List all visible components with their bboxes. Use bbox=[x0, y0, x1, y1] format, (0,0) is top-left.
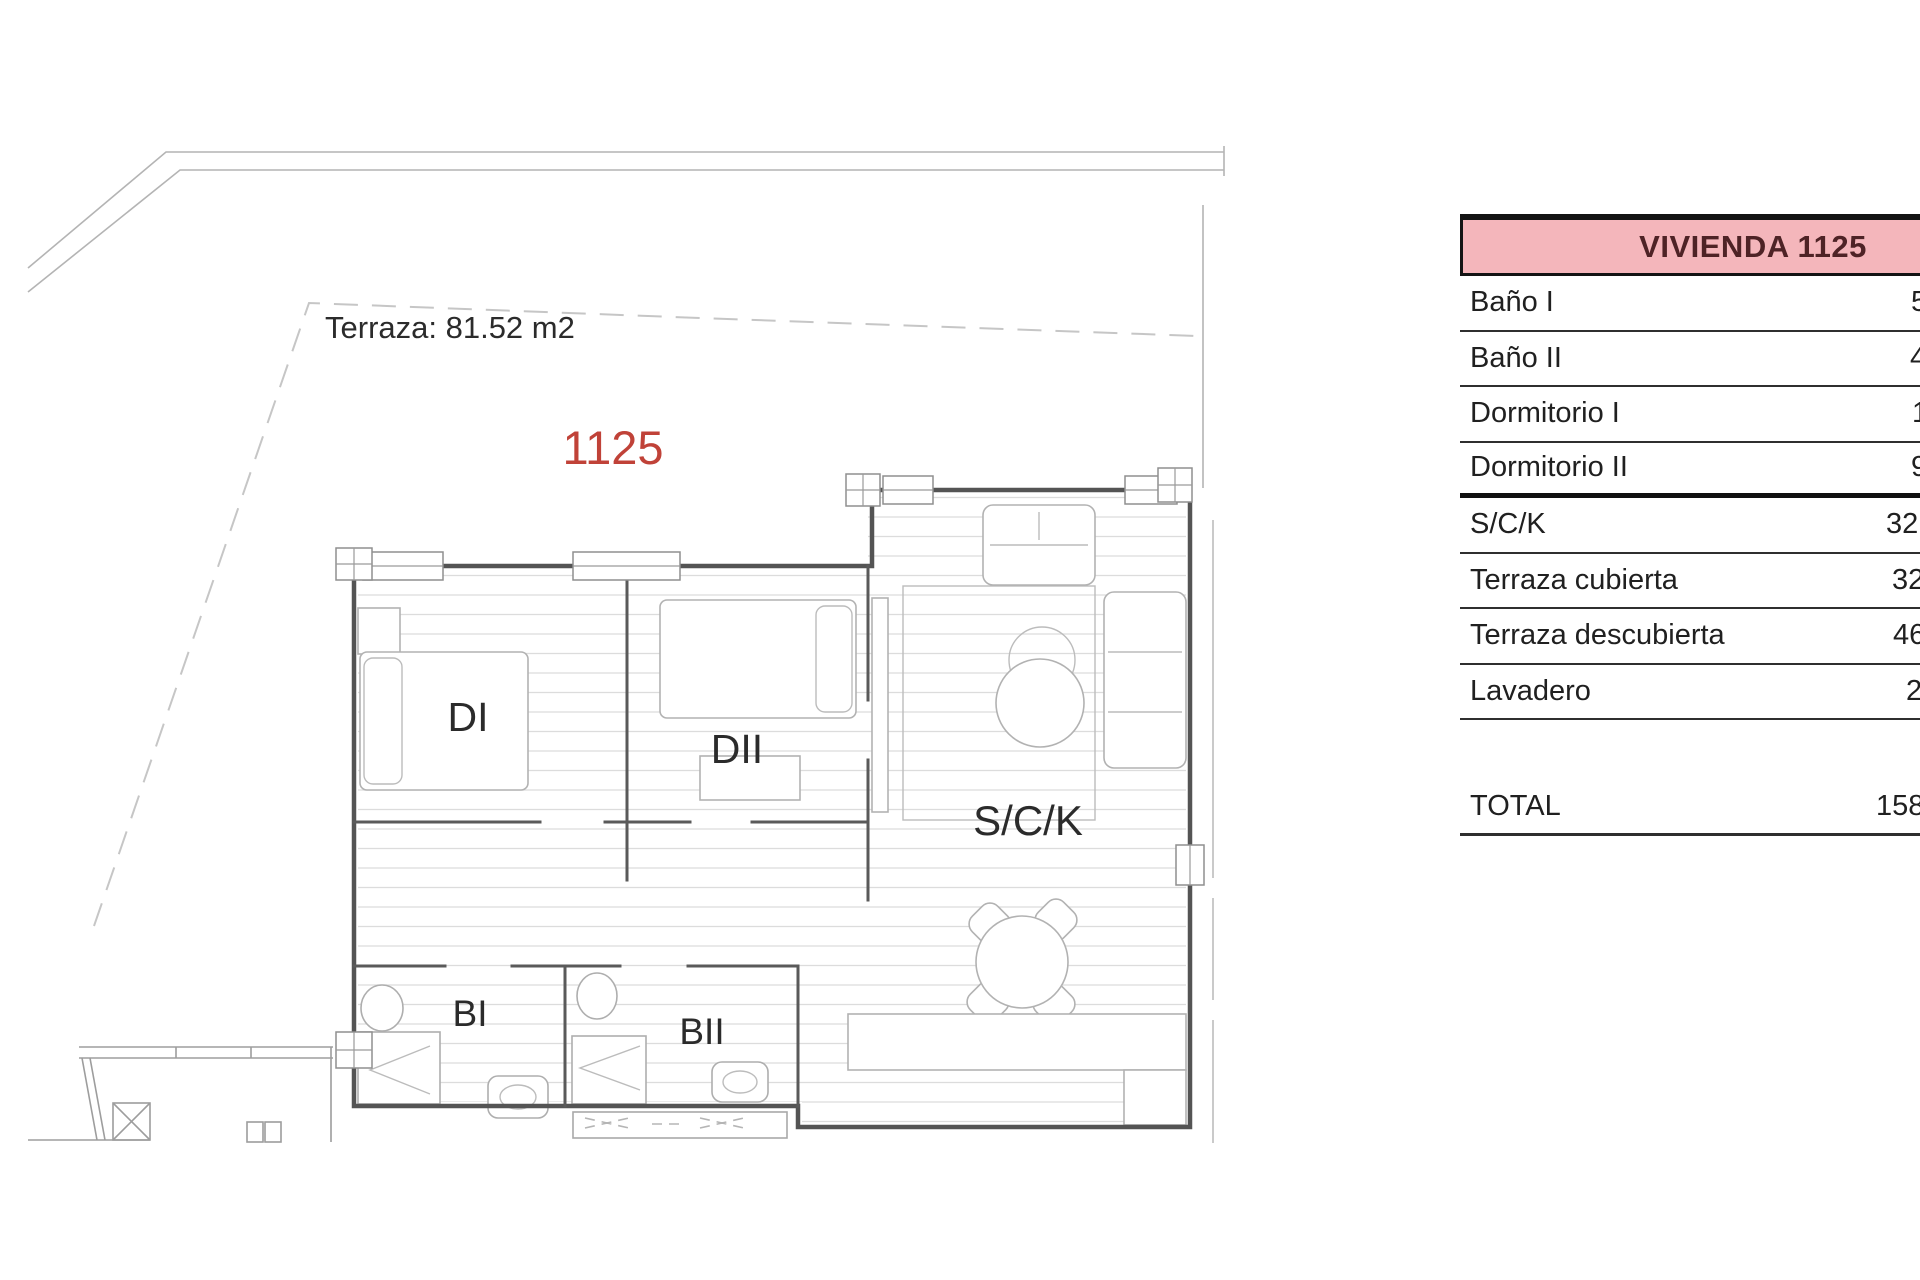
table-row: Dormitorio I 1 bbox=[1460, 387, 1920, 443]
toilet-bii-icon bbox=[712, 1062, 768, 1102]
row-label: Lavadero bbox=[1460, 675, 1591, 708]
sofa-icon bbox=[1104, 592, 1186, 768]
table-row: Dormitorio II 9 bbox=[1460, 443, 1920, 499]
terrace-area-label: Terraza: 81.52 m2 bbox=[325, 310, 575, 345]
floor-plan-page: { "page_title": "Plano de planta Viviend… bbox=[0, 0, 1920, 1280]
row-value: 46 bbox=[1893, 609, 1920, 663]
window-icon bbox=[363, 552, 443, 580]
table-row: Lavadero 2 bbox=[1460, 665, 1920, 721]
corner-cross-icon bbox=[846, 474, 880, 506]
row-value: 32 bbox=[1892, 554, 1920, 608]
row-label: Dormitorio II bbox=[1460, 451, 1628, 484]
table-row: Terraza cubierta 32 bbox=[1460, 554, 1920, 610]
unit-number-label: 1125 bbox=[562, 421, 663, 474]
window-icon bbox=[573, 552, 680, 580]
room-label-sck: S/C/K bbox=[973, 797, 1083, 844]
row-label: Terraza descubierta bbox=[1460, 619, 1725, 652]
total-label: TOTAL bbox=[1460, 790, 1561, 823]
window-icon bbox=[883, 476, 933, 504]
corner-cross-icon bbox=[336, 548, 372, 580]
table-row: Baño I 5 bbox=[1460, 276, 1920, 332]
door-frame-icon bbox=[265, 1122, 281, 1142]
window-icon bbox=[1176, 845, 1204, 885]
row-label: S/C/K bbox=[1460, 508, 1546, 541]
door-frame-icon bbox=[247, 1122, 263, 1142]
row-value: 1 bbox=[1912, 387, 1920, 441]
row-label: Baño I bbox=[1460, 286, 1554, 319]
room-label-bii: BII bbox=[679, 1011, 724, 1052]
entrance-area bbox=[28, 1047, 333, 1142]
row-value: 32 bbox=[1886, 498, 1918, 552]
corner-cross-icon bbox=[1158, 468, 1192, 502]
row-value: 4 bbox=[1910, 332, 1920, 386]
lavadero-vent bbox=[573, 1112, 787, 1138]
row-label: Dormitorio I bbox=[1460, 397, 1620, 430]
row-label: Terraza cubierta bbox=[1460, 564, 1678, 597]
shower-bii-icon bbox=[572, 1036, 646, 1104]
table-row: Terraza descubierta 46 bbox=[1460, 609, 1920, 665]
table-row: Baño II 4 bbox=[1460, 332, 1920, 388]
armchair-icon bbox=[983, 505, 1095, 585]
toilet-bi-icon bbox=[488, 1076, 548, 1118]
row-label: Baño II bbox=[1460, 342, 1562, 375]
table-header: VIVIENDA 1125 bbox=[1460, 214, 1920, 276]
wardrobe-icon bbox=[358, 608, 400, 654]
row-value: 5 bbox=[1911, 276, 1920, 330]
corner-cross-icon bbox=[336, 1032, 372, 1068]
table-total-row: TOTAL 158 bbox=[1460, 780, 1920, 836]
room-label-dii: DII bbox=[711, 726, 763, 772]
total-value: 158 bbox=[1876, 780, 1920, 833]
shaft-x-icon bbox=[113, 1103, 150, 1140]
room-label-bi: BI bbox=[453, 993, 488, 1034]
unit-summary-table: VIVIENDA 1125 Baño I 5 Baño II 4 Dormito… bbox=[1460, 214, 1920, 836]
row-value: 9 bbox=[1911, 443, 1920, 494]
tv-unit-icon bbox=[872, 598, 888, 812]
room-label-di: DI bbox=[448, 694, 489, 740]
row-value: 2 bbox=[1906, 665, 1920, 719]
table-row: S/C/K 32 bbox=[1460, 498, 1920, 554]
sink-bi-icon bbox=[361, 985, 403, 1031]
bed-di-icon bbox=[360, 652, 528, 790]
sink-bii-icon bbox=[577, 973, 617, 1019]
